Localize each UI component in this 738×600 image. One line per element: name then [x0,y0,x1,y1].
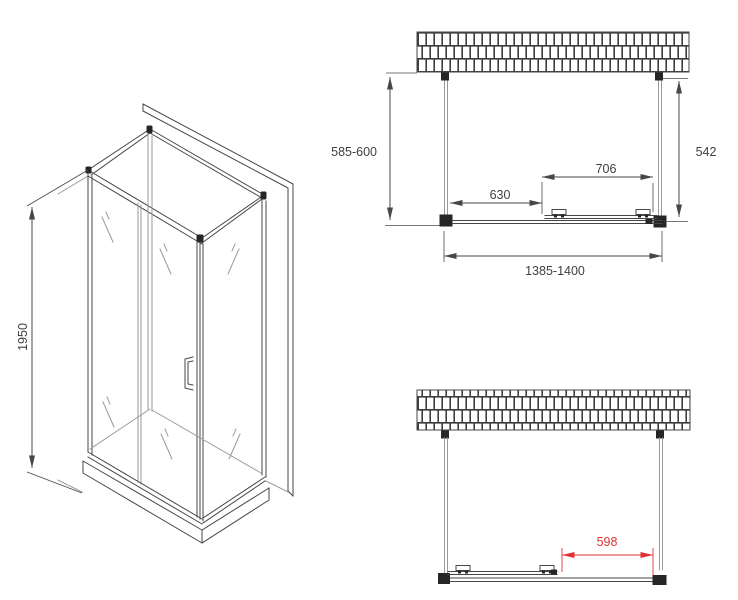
glass-shine [160,244,171,274]
right-depth-dimension: 542 [663,79,716,222]
fixed-panel-dimension: 630 [450,182,542,214]
height-dimension-label: 1950 [16,323,30,351]
door-edge-post [138,203,141,484]
back-right-post [262,199,266,477]
post-cap [261,192,267,200]
back-wall-panel [143,104,293,496]
technical-drawing: 1950 585-600 [0,0,738,600]
plan-view-open: 598 [417,390,690,585]
shower-tray [83,461,269,543]
door-width-dimension: 706 [542,162,653,212]
total-width-dimension-label: 1385-1400 [525,264,585,278]
door-width-dimension-label: 706 [596,162,617,176]
total-width-dimension: 1385-1400 [444,231,662,278]
back-bottom-rails [90,409,261,473]
wall-hatch [417,32,689,72]
side-depth-dimension: 585-600 [331,73,440,226]
right-bottom-rail [203,477,265,523]
right-depth-dimension-label: 542 [696,145,717,159]
extension-line [27,472,82,493]
extension-line [27,170,88,206]
corner-block [440,215,453,227]
sliding-door-open [448,572,557,575]
bottom-rail [444,578,666,582]
roller [636,210,650,218]
side-depth-dimension-label: 585-600 [331,145,377,159]
height-dimension: 1950 [16,170,88,493]
front-bottom-rail [88,452,202,524]
glass-shine [103,397,114,427]
opening-dimension-label: 598 [597,535,618,549]
roller [456,566,470,574]
wall-hatch [417,390,690,430]
glass-shine [102,212,113,242]
wall-bracket [656,431,664,439]
post-cap [147,126,153,134]
iso-view: 1950 [16,104,293,543]
back-left-post [148,133,152,411]
side-panel-right [659,80,662,216]
corner-block [653,575,667,585]
post-cap [86,167,92,174]
side-panel-left [445,438,448,576]
front-left-post [88,173,92,455]
floor-line-left [58,480,82,492]
wall-bracket [441,431,449,439]
glass-shine [161,429,172,459]
opening-dimension: 598 [562,535,653,575]
side-panel-right [660,438,663,570]
front-rail [452,221,662,224]
glass-shine [228,244,239,274]
technical-drawing-page: 1950 585-600 [0,0,738,600]
wall-bracket [655,73,663,81]
top-frame-rails [88,129,264,244]
fixed-panel-dimension-label: 630 [490,188,511,202]
roller [552,210,566,218]
door-stop [551,570,557,575]
side-panel-left [445,80,448,216]
door-handle [185,357,193,390]
glass-shine [229,429,240,459]
wall-bracket [441,73,449,81]
front-right-post [197,241,203,521]
post-cap [197,235,204,243]
plan-view-closed: 585-600 542 630 706 1385-1400 [331,32,716,278]
door-stop [646,219,653,224]
